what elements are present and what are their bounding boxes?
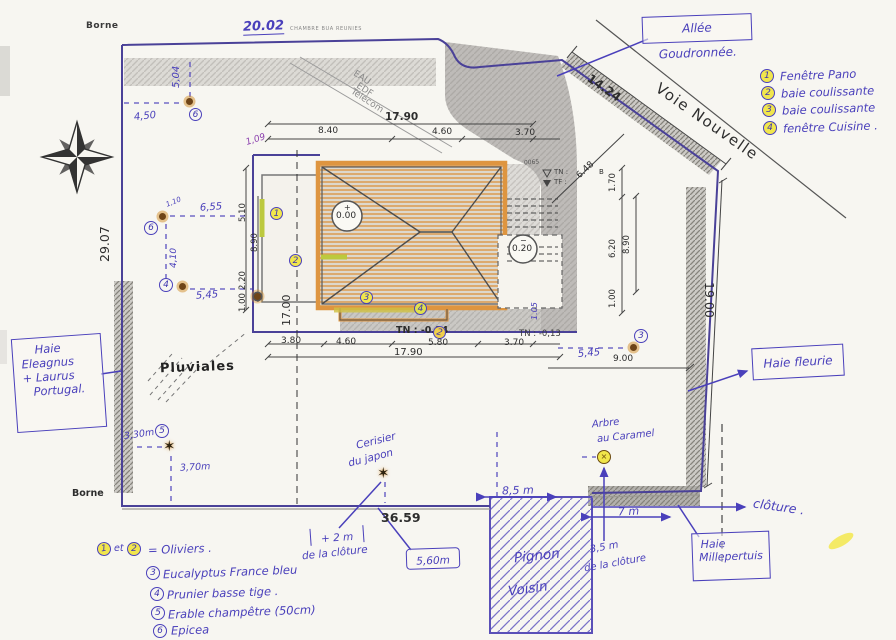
dim-right-3: 8.90 [623, 235, 632, 254]
window-legend-label-4: fenêtre Cuisine . [783, 119, 878, 135]
measure-4-10: 4,10 [170, 248, 180, 268]
dim-1-05: 1.05 [531, 302, 540, 320]
tree-legend-oliviers: = Oliviers . [148, 542, 212, 557]
measure-6-55: 6,55 [200, 202, 223, 214]
dim-7m: 7 m [618, 505, 640, 518]
tree-olivier-courtyard [254, 293, 261, 300]
measure-5-04: 5,04 [172, 66, 183, 88]
tree-cerisier-symbol: ✶ [377, 465, 390, 481]
tree-legend-num-2: 2 [127, 542, 141, 556]
measure-4-50: 4,50 [133, 111, 156, 124]
dim-right-4: 1.00 [609, 289, 618, 308]
dim-bottom-d: 3.70 [504, 339, 524, 349]
tn-minus-013: TN : -0,13 [519, 330, 561, 339]
plan-window-marker-2: 2 [289, 254, 302, 267]
plan-window-marker-1: 1 [270, 207, 283, 220]
level-zero: 0.00 [336, 212, 356, 222]
plan-window-marker-3: 3 [360, 291, 373, 304]
parcel-number: 0065 [524, 159, 540, 167]
dim-left-3: 2.20 [239, 271, 248, 290]
dim-top-b: 4.60 [432, 128, 452, 138]
dim-top-total: 17.90 [385, 112, 418, 123]
level-minus20: 0.20 [512, 245, 532, 255]
tree-caramel-symbol: × [597, 450, 611, 464]
compass-rose-icon [42, 122, 112, 192]
dim-bottom-c: 5.80 [428, 339, 448, 349]
window-legend-label-3: baie coulissante [782, 101, 876, 117]
borne-top-label: Borne [86, 22, 119, 32]
dim-east: 19.00 [703, 282, 717, 318]
neighbour-gable-box [490, 497, 592, 633]
measure-3-70: 3,70m [180, 462, 211, 474]
tree-legend-num-4: 4 [150, 587, 164, 601]
tree-legend-label-6: Epicea [171, 623, 210, 637]
dim-5-60-text: 5,60m [416, 554, 450, 567]
window-legend-num-1: 1 [760, 69, 774, 83]
plus-2m-text: + 2 m [321, 531, 354, 545]
dim-5-60-box: 5,60m [406, 547, 461, 570]
tree-erable-symbol: ✶ [163, 438, 176, 454]
tn-label: TN : [554, 169, 568, 177]
dim-left-2: 8.90 [251, 233, 260, 252]
tree-marker-4: 4 [159, 278, 173, 292]
dim-west: 29.07 [98, 226, 112, 262]
tree-epicea-top [186, 98, 193, 105]
tree-prunier [179, 283, 186, 290]
dim-bottom-total: 17.90 [394, 348, 423, 359]
tree-legend-et: et [114, 544, 124, 554]
dim-top-c: 3.70 [515, 129, 535, 139]
haie-mp-line2: Millepertuis [693, 549, 769, 565]
window-legend-num-2: 2 [761, 86, 775, 100]
allee-goudronnee-box: Allée Goudronnée. [642, 13, 753, 44]
tree-legend-num-5: 5 [151, 606, 165, 620]
plan-window-marker-4: 4 [414, 302, 427, 315]
tf-label: TF : [554, 179, 567, 187]
dim-south: 36.59 [381, 511, 421, 525]
tree-marker-3: 3 [634, 329, 648, 343]
dim-bottom-a: 3.80 [281, 337, 301, 347]
measure-5-45-left: 5,45 [196, 290, 219, 302]
dim-left-4: 1.00 [239, 293, 248, 312]
haie-fleurie-label: Haie fleurie [763, 353, 833, 371]
tree-marker-6b: 6 [144, 221, 158, 235]
tree-marker-6a: 6 [189, 108, 202, 121]
site-plan-scan: Borne Borne 20.02 CHAMBRE BUA REUNIES EA… [0, 0, 896, 640]
window-legend-num-4: 4 [763, 121, 777, 135]
measure-5-45-right: 5,45 [578, 348, 601, 361]
haie-fleurie-box: Haie fleurie [751, 344, 845, 381]
dim-top-a: 8.40 [318, 127, 338, 137]
utility-chamber-print: CHAMBRE BUA REUNIES [290, 27, 362, 32]
borne-bottom-label: Borne [72, 489, 104, 499]
window-legend-label-2: baie coulissante [781, 84, 875, 100]
window-legend-label-1: Fenêtre Pano [780, 68, 857, 83]
dim-north: 20.02 [243, 19, 285, 35]
pluviales-label: Pluviales [160, 360, 235, 377]
tree-marker-5: 5 [155, 424, 169, 438]
dim-east-inner: 9.00 [613, 355, 633, 365]
dim-left-1: 5.10 [239, 203, 248, 222]
dim-8-5m: 8,5 m [502, 484, 534, 497]
tree-epicea-mid [159, 213, 166, 220]
point-b-label: B [599, 169, 604, 177]
window-legend-num-3: 3 [762, 103, 776, 117]
allee-goudronnee-label: Allée Goudronnée. [659, 20, 737, 61]
haie-eleagnus-box: Haie Eleagnus + Laurus Portugal. [11, 333, 107, 433]
tree-eucalyptus [630, 344, 637, 351]
tree-legend-num-6: 6 [153, 624, 167, 638]
dim-left-total: 17.00 [281, 295, 293, 327]
haie-millepertuis-box: Haie Millepertuis [691, 531, 771, 582]
dim-right-2: 6.20 [609, 239, 618, 258]
tree-legend-num-3: 3 [146, 566, 160, 580]
dim-bottom-b: 4.60 [336, 338, 356, 348]
dim-right-1: 1.70 [609, 173, 618, 192]
